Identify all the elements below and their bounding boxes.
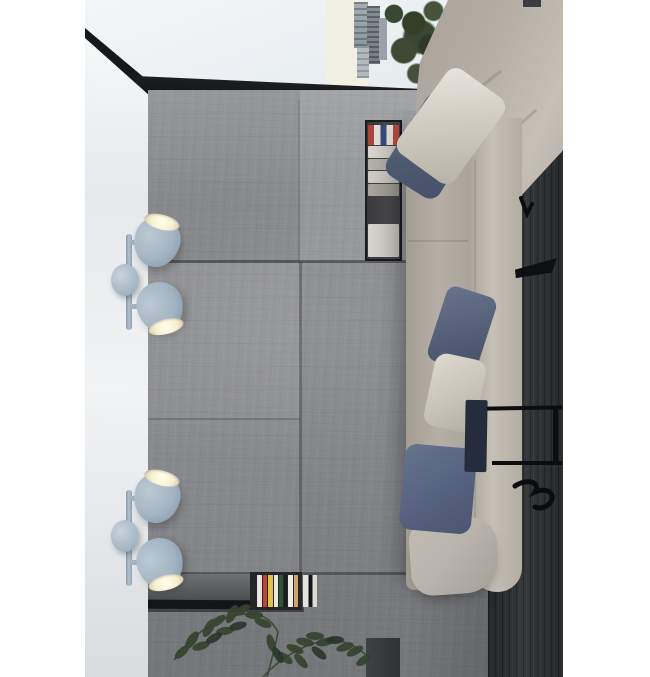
white-tall-book (368, 224, 399, 257)
interior-scene (0, 0, 650, 677)
black-hook (518, 196, 536, 218)
side-table-frame (492, 461, 562, 465)
plant-branch (168, 598, 380, 677)
flag-cover-book (368, 125, 399, 145)
panel-seam (298, 100, 300, 262)
lamp-head-up (129, 468, 186, 528)
white-margin-right (563, 0, 650, 677)
navy-tray (464, 400, 487, 472)
dark-book (368, 184, 399, 196)
side-table-frame (553, 408, 558, 465)
wall-lamp-lower (106, 470, 196, 594)
panel-seam (299, 262, 302, 573)
wall-lamp-upper (106, 214, 196, 338)
panel-seam (148, 418, 300, 420)
lamp-head-down (132, 277, 189, 337)
lamp-head-up (129, 212, 186, 272)
city-building (354, 2, 368, 48)
white-margin-left (0, 0, 85, 677)
lamp-head-down (132, 533, 189, 593)
cushion-gap (523, 0, 541, 7)
city-building (357, 46, 369, 78)
chair-leg-curve (511, 476, 559, 518)
gap (368, 197, 399, 223)
seat-seam (408, 240, 468, 242)
